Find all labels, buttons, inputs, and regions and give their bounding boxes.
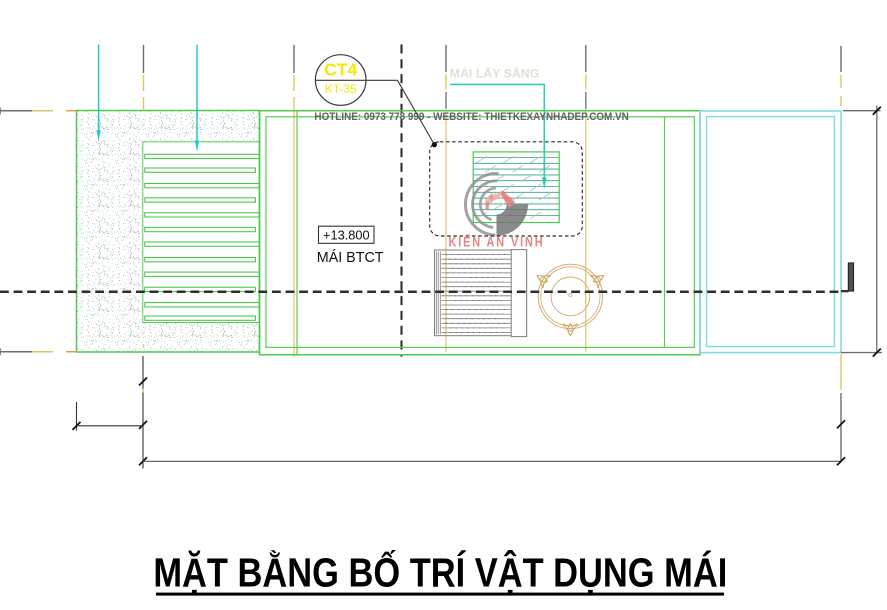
svg-text:HOTLINE: 0973 778 999 - WEBSIT: HOTLINE: 0973 778 999 - WEBSITE: THIETKE… <box>314 111 628 123</box>
svg-text:MẶT BẰNG BỐ TRÍ VẬT DỤNG MÁI: MẶT BẰNG BỐ TRÍ VẬT DỤNG MÁI <box>153 548 727 597</box>
svg-text:KT-35: KT-35 <box>325 82 357 96</box>
svg-text:+13.800: +13.800 <box>323 228 370 243</box>
svg-text:MÁI LẤY SÁNG: MÁI LẤY SÁNG <box>450 66 540 81</box>
svg-text:CT4: CT4 <box>324 60 357 80</box>
svg-text:MÁI BTCT: MÁI BTCT <box>317 249 384 266</box>
svg-text:KIẾN AN VINH: KIẾN AN VINH <box>448 233 544 250</box>
